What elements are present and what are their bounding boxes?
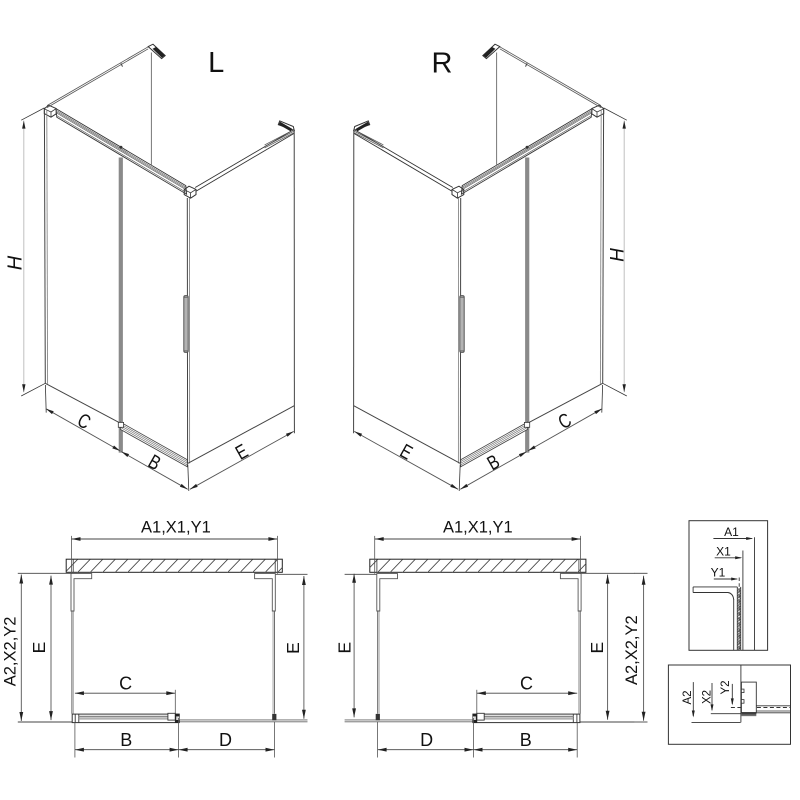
svg-text:D: D — [219, 730, 232, 750]
svg-text:X2: X2 — [701, 690, 713, 704]
svg-text:A2,X2,Y2: A2,X2,Y2 — [2, 617, 20, 687]
svg-text:H: H — [608, 248, 629, 262]
svg-text:A2: A2 — [682, 690, 694, 704]
svg-text:D: D — [420, 730, 433, 750]
svg-text:R: R — [432, 47, 453, 79]
svg-text:A1,X1,Y1: A1,X1,Y1 — [141, 518, 211, 536]
svg-text:C: C — [119, 674, 132, 694]
svg-text:A2,X2,Y2: A2,X2,Y2 — [623, 615, 641, 685]
svg-text:X1: X1 — [716, 544, 731, 558]
svg-text:E: E — [587, 642, 607, 654]
svg-text:H: H — [5, 255, 27, 270]
svg-text:E: E — [335, 642, 355, 654]
svg-text:A1: A1 — [724, 525, 739, 539]
svg-text:Y1: Y1 — [711, 566, 726, 580]
svg-text:E: E — [283, 642, 303, 654]
svg-text:B: B — [520, 730, 532, 750]
svg-text:Y2: Y2 — [720, 680, 732, 694]
svg-text:B: B — [120, 730, 132, 750]
svg-text:C: C — [520, 674, 533, 694]
svg-text:L: L — [208, 47, 224, 79]
svg-text:E: E — [29, 642, 49, 654]
svg-text:A1,X1,Y1: A1,X1,Y1 — [443, 518, 513, 536]
